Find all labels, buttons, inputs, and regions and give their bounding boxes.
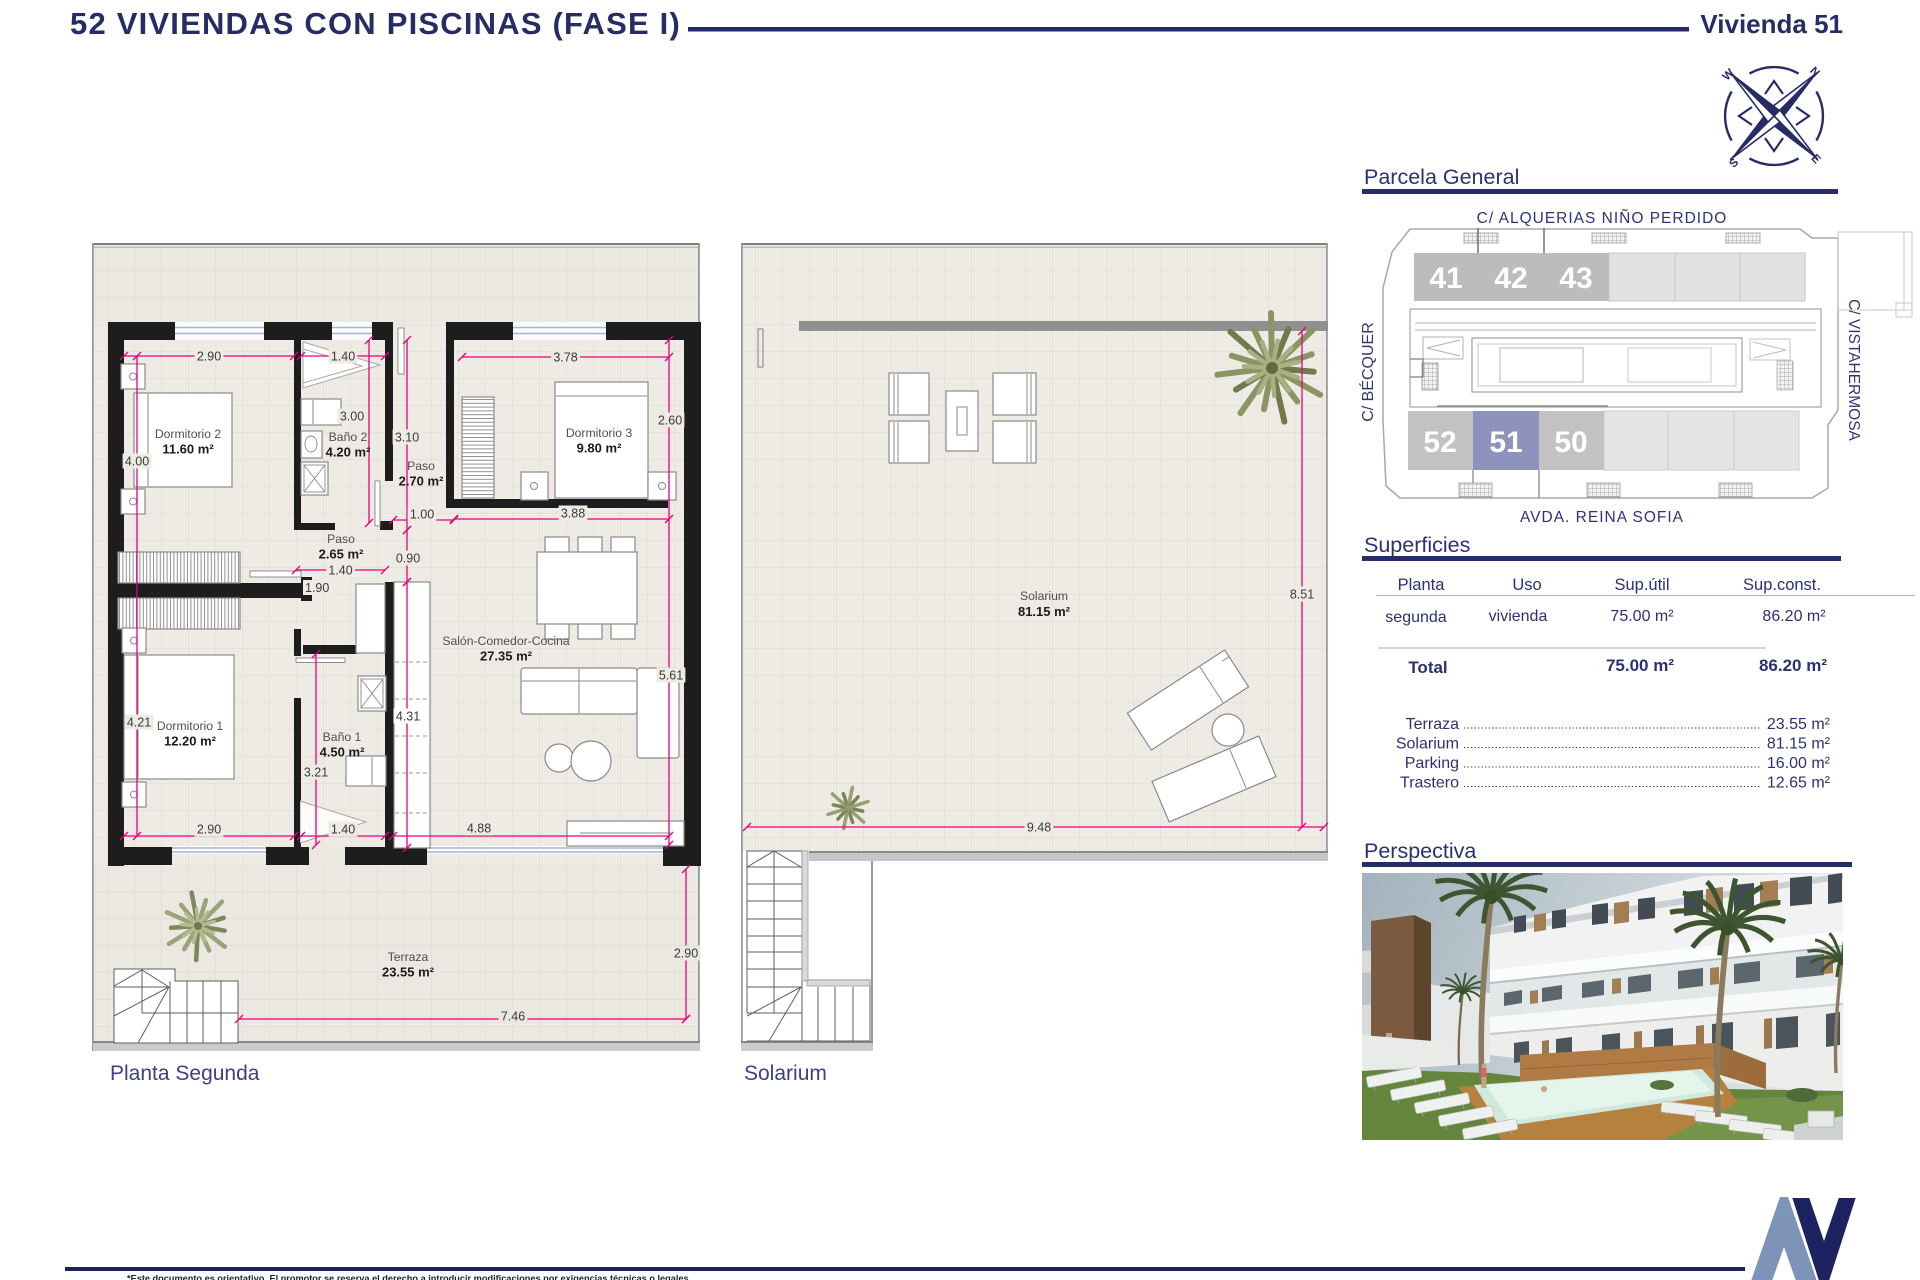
svg-text:1.00: 1.00 (410, 508, 434, 522)
svg-text:Salón-Comedor-Cocina: Salón-Comedor-Cocina (442, 634, 570, 648)
svg-text:27.35 m²: 27.35 m² (480, 649, 533, 664)
svg-text:Solarium: Solarium (1396, 736, 1459, 753)
svg-text:Baño 1: Baño 1 (323, 730, 362, 744)
svg-text:11.60 m²: 11.60 m² (162, 442, 214, 457)
svg-text:4.88: 4.88 (467, 822, 491, 836)
svg-text:50: 50 (1554, 426, 1587, 459)
svg-text:51: 51 (1489, 426, 1522, 459)
svg-text:Solarium: Solarium (1020, 589, 1068, 603)
svg-text:12.20 m²: 12.20 m² (164, 734, 217, 749)
svg-text:23.55 m²: 23.55 m² (382, 965, 435, 980)
svg-text:2.70 m²: 2.70 m² (399, 474, 444, 489)
svg-text:Terraza: Terraza (1406, 716, 1459, 733)
svg-text:Solarium: Solarium (744, 1062, 827, 1085)
svg-text:Perspectiva: Perspectiva (1364, 839, 1476, 863)
svg-text:81.15 m²: 81.15 m² (1018, 604, 1071, 619)
svg-text:Sup.útil: Sup.útil (1614, 576, 1669, 594)
svg-text:S: S (1727, 156, 1741, 170)
svg-text:Paso: Paso (407, 459, 435, 473)
svg-text:4.00: 4.00 (125, 455, 149, 469)
svg-text:C/ ALQUERIAS NIÑO PERDIDO: C/ ALQUERIAS NIÑO PERDIDO (1477, 210, 1728, 227)
svg-text:4.50 m²: 4.50 m² (320, 745, 365, 760)
svg-text:3.10: 3.10 (395, 431, 419, 445)
svg-text:75.00 m²: 75.00 m² (1606, 656, 1674, 675)
svg-text:3.00: 3.00 (340, 410, 364, 424)
svg-text:1.40: 1.40 (331, 350, 355, 364)
svg-text:Parking: Parking (1405, 755, 1459, 772)
svg-text:41: 41 (1429, 262, 1462, 295)
svg-text:Terraza: Terraza (388, 950, 429, 964)
svg-text:42: 42 (1494, 262, 1527, 295)
svg-text:Uso: Uso (1512, 576, 1541, 594)
svg-text:3.88: 3.88 (561, 507, 585, 521)
svg-text:Dormitorio 1: Dormitorio 1 (157, 719, 224, 733)
svg-text:1.90: 1.90 (305, 581, 329, 595)
svg-text:4.20 m²: 4.20 m² (326, 445, 371, 460)
svg-text:Superficies: Superficies (1364, 533, 1470, 557)
svg-text:Trastero: Trastero (1400, 775, 1459, 792)
svg-text:W: W (1721, 67, 1737, 83)
svg-text:2.90: 2.90 (197, 350, 221, 364)
svg-text:0.90: 0.90 (396, 552, 420, 566)
svg-text:Sup.const.: Sup.const. (1743, 576, 1821, 594)
svg-text:2.90: 2.90 (674, 947, 698, 961)
svg-text:2.90: 2.90 (197, 823, 221, 837)
svg-text:75.00 m²: 75.00 m² (1610, 608, 1674, 625)
svg-text:C/ VISTAHERMOSA: C/ VISTAHERMOSA (1845, 299, 1862, 441)
svg-text:Baño 2: Baño 2 (329, 430, 368, 444)
svg-text:Total: Total (1408, 658, 1447, 677)
svg-text:Dormitorio 2: Dormitorio 2 (155, 427, 222, 441)
svg-text:2.65 m²: 2.65 m² (319, 547, 364, 562)
svg-text:23.55 m²: 23.55 m² (1767, 716, 1831, 733)
svg-text:43: 43 (1559, 262, 1592, 295)
svg-text:52: 52 (1423, 426, 1456, 459)
svg-text:1.40: 1.40 (328, 564, 352, 578)
svg-text:3.21: 3.21 (304, 766, 328, 780)
svg-text:8.51: 8.51 (1290, 588, 1314, 602)
svg-text:Vivienda 51: Vivienda 51 (1700, 9, 1843, 39)
svg-text:Parcela General: Parcela General (1364, 165, 1519, 189)
svg-text:AVDA. REINA SOFIA: AVDA. REINA SOFIA (1520, 509, 1684, 526)
svg-text:7.46: 7.46 (501, 1010, 525, 1024)
svg-text:4.21: 4.21 (127, 716, 151, 730)
svg-text:Dormitorio 3: Dormitorio 3 (566, 426, 633, 440)
svg-text:3.78: 3.78 (553, 351, 577, 365)
svg-text:segunda: segunda (1385, 609, 1446, 626)
svg-text:81.15 m²: 81.15 m² (1767, 736, 1831, 753)
svg-text:9.48: 9.48 (1027, 821, 1051, 835)
svg-text:86.20 m²: 86.20 m² (1762, 608, 1826, 625)
svg-text:Planta: Planta (1398, 576, 1446, 594)
svg-text:N: N (1807, 65, 1821, 79)
svg-text:5.61: 5.61 (659, 669, 683, 683)
svg-text:16.00 m²: 16.00 m² (1767, 755, 1831, 772)
svg-text:Paso: Paso (327, 532, 355, 546)
svg-text:52 VIVIENDAS CON PISCINAS (FAS: 52 VIVIENDAS CON PISCINAS (FASE I) (70, 6, 681, 41)
svg-text:9.80 m²: 9.80 m² (577, 441, 622, 456)
svg-text:*Este documento es orientativo: *Este documento es orientativo. El promo… (127, 1274, 689, 1280)
svg-text:12.65 m²: 12.65 m² (1767, 775, 1831, 792)
svg-text:vivienda: vivienda (1489, 608, 1548, 625)
svg-text:86.20 m²: 86.20 m² (1759, 656, 1827, 675)
svg-text:1.40: 1.40 (331, 823, 355, 837)
svg-text:Planta Segunda: Planta Segunda (110, 1062, 260, 1085)
svg-text:4.31: 4.31 (396, 710, 420, 724)
svg-text:C/ BÉCQUER: C/ BÉCQUER (1358, 322, 1377, 422)
svg-text:2.60: 2.60 (658, 414, 682, 428)
svg-text:E: E (1809, 152, 1823, 166)
